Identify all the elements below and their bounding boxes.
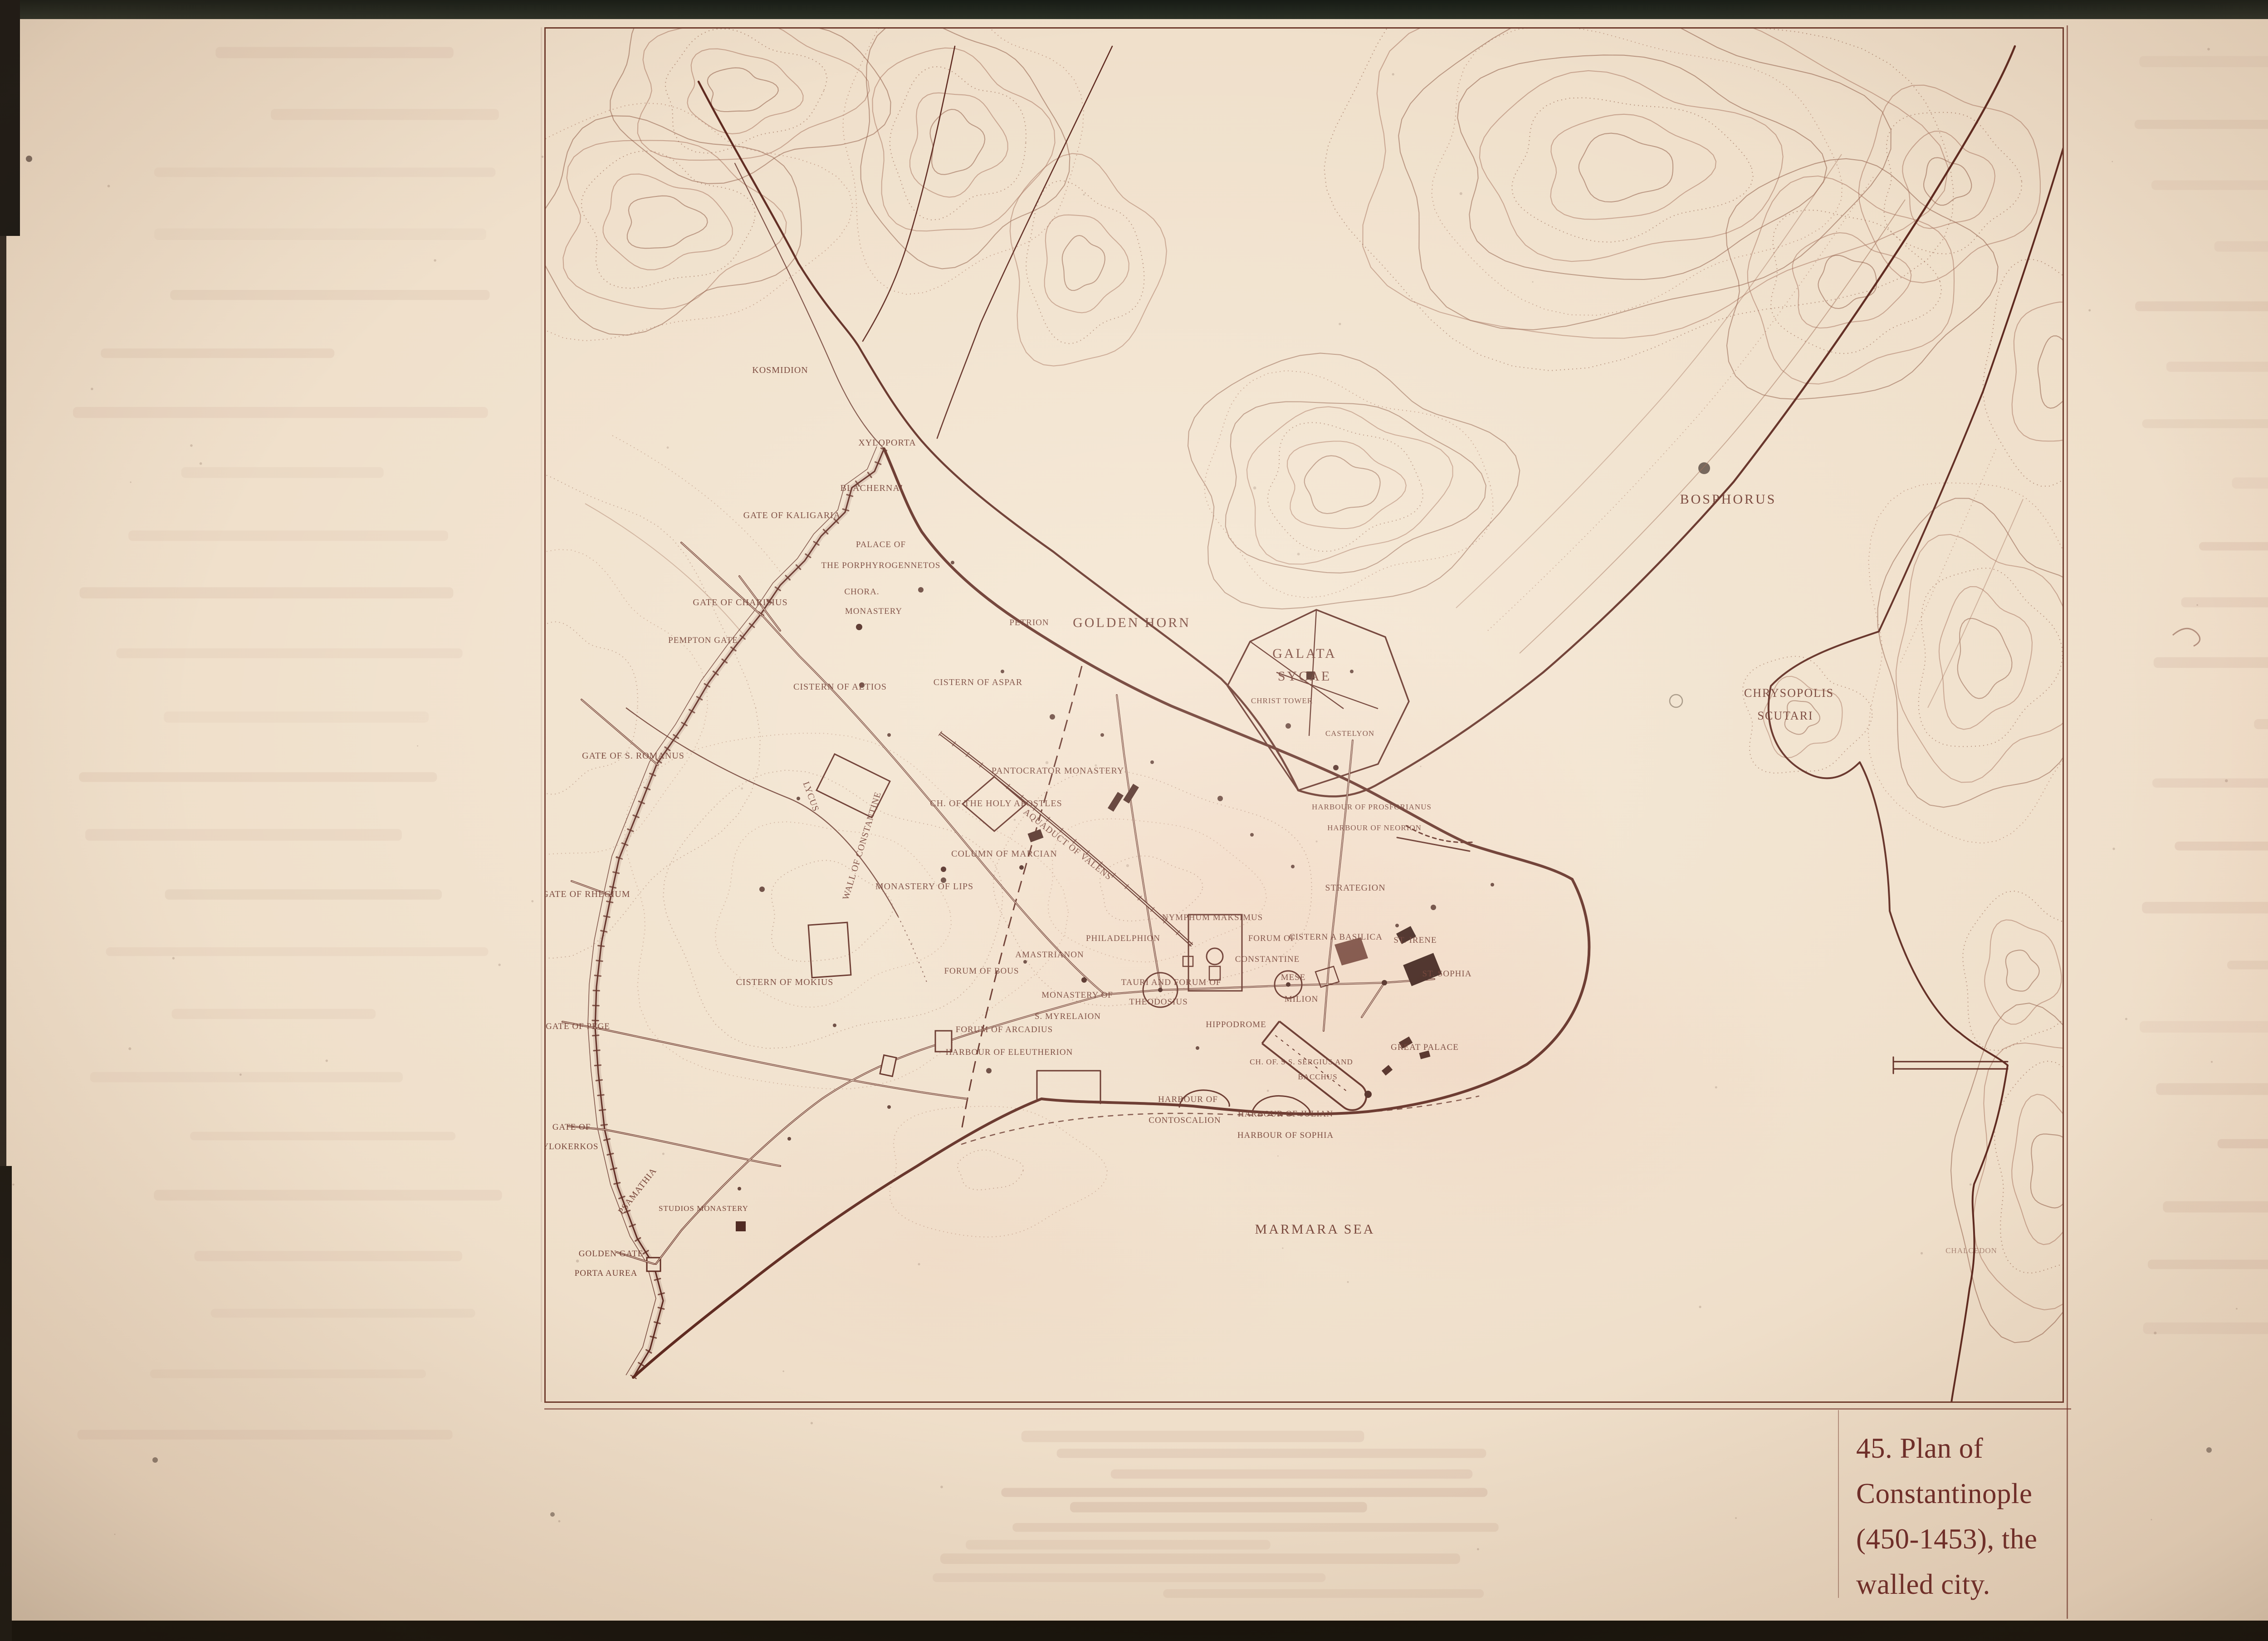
label-pantocrator-monastery: PANTOCRATOR MONASTERY xyxy=(992,766,1124,776)
label-mese: MESE xyxy=(1281,973,1306,982)
label-lycus: LYCUS xyxy=(801,780,821,813)
scan-edge-top xyxy=(0,0,2268,19)
label-scutari: SCUTARI xyxy=(1757,709,1813,722)
label-cistern-of-mokius: CISTERN OF MOKIUS xyxy=(736,977,834,987)
label-strategion: STRATEGION xyxy=(1325,883,1385,893)
monuments-and-sites xyxy=(736,624,1682,1231)
label-aquaduct-of-valens: AQUADUCT OF VALENS xyxy=(1022,807,1114,882)
figure-caption: 45. Plan of Constantinople (450-1453), t… xyxy=(1856,1425,2065,1607)
label-blachernai: BLACHERNAI xyxy=(841,483,904,493)
label-gate-of-s-romanus: GATE OF S. ROMANUS xyxy=(582,751,684,761)
label-chalcedon: CHALCEDON xyxy=(1945,1246,1997,1255)
label-hippodrome: HIPPODROME xyxy=(1206,1020,1266,1029)
label-ss-sergius-bacchus: BACCHUS xyxy=(1298,1073,1337,1081)
label-bosphorus: BOSPHORUS xyxy=(1680,492,1777,507)
label-great-palace: GREAT PALACE xyxy=(1391,1043,1459,1052)
caption-top-rule xyxy=(544,1408,2071,1410)
label-philadelphion: PHILADELPHION xyxy=(1086,934,1160,943)
label-monastery-myrelaion: MONASTERY OF xyxy=(1041,990,1113,1000)
label-tauri-forum-theodosius: THEODOSIUS xyxy=(1129,997,1188,1007)
label-chora-monastery: MONASTERY xyxy=(845,607,902,616)
label-studios-monastery: STUDIOS MONASTERY xyxy=(659,1204,748,1213)
caption-line: Constantinople xyxy=(1856,1471,2065,1516)
label-monastery-myrelaion: S. MYRELAION xyxy=(1035,1012,1101,1021)
label-forum-of-bous: FORUM OF BOUS xyxy=(944,966,1019,976)
label-psamathia: PSAMATHIA xyxy=(616,1166,659,1216)
label-gate-of-kaligaria: GATE OF KALIGARIA xyxy=(743,510,841,520)
caption-left-rule xyxy=(1838,1410,1839,1598)
label-palace-porphyrogennetos: PALACE OF xyxy=(856,540,906,549)
label-cistern-of-aetios: CISTERN OF AETIOS xyxy=(793,682,887,692)
label-palace-porphyrogennetos: THE PORPHYROGENNETOS xyxy=(821,561,941,570)
label-harbour-contoscalion: HARBOUR OF xyxy=(1158,1095,1218,1104)
label-tauri-forum-theodosius: TAURI AND FORUM OF xyxy=(1121,978,1222,987)
label-harbour-contoscalion: CONTOSCALION xyxy=(1149,1116,1221,1125)
label-amastrianon: AMASTRIANON xyxy=(1015,950,1084,960)
label-gate-of-rhegium: GATE OF RHEGIUM xyxy=(544,889,631,899)
label-harbour-prosforianus: HARBOUR OF PROSFORIANUS xyxy=(1312,803,1432,811)
label-gate-xylokerkos: XYLOKERKOS xyxy=(544,1142,598,1151)
label-harbour-julian: HARBOUR OF JULIAN xyxy=(1238,1109,1333,1119)
label-golden-gate: GOLDEN GATE xyxy=(579,1249,643,1259)
label-harbour-sophia: HARBOUR OF SOPHIA xyxy=(1237,1131,1334,1140)
scan-edge-bottom xyxy=(0,1621,2268,1641)
scan-edge-left-bottom-wedge xyxy=(0,1166,12,1641)
label-chora-monastery: CHORA. xyxy=(844,587,879,597)
label-forum-of-arcadius: FORUM OF ARCADIUS xyxy=(956,1025,1053,1034)
label-st-sophia: ST. SOPHIA xyxy=(1422,969,1472,979)
city-walls xyxy=(588,446,1409,1377)
scanned-book-page: KOSMIDION XYLOPORTA BLACHERNAI GATE OF K… xyxy=(0,0,2268,1641)
label-forum-of-constantine: CONSTANTINE xyxy=(1235,955,1300,964)
map-drawing: KOSMIDION XYLOPORTA BLACHERNAI GATE OF K… xyxy=(544,27,2064,1403)
label-cistern-of-aspar: CISTERN OF ASPAR xyxy=(934,677,1022,687)
label-gate-of-charisius: GATE OF CHARISIUS xyxy=(693,598,787,607)
map-labels: KOSMIDION XYLOPORTA BLACHERNAI GATE OF K… xyxy=(544,365,1997,1278)
label-chrysopolis: CHRYSOPOLIS xyxy=(1744,686,1834,700)
label-st-irene: ST. IRENE xyxy=(1393,936,1437,945)
label-harbour-neorion: HARBOUR OF NEORION xyxy=(1327,823,1422,832)
label-forum-of-constantine: FORUM OF xyxy=(1248,934,1296,943)
label-marmara-sea: MARMARA SEA xyxy=(1255,1222,1375,1237)
label-nymphum-maksimus: NYMPHUM MAKSIMUS xyxy=(1162,913,1263,922)
label-xyloporta: XYLOPORTA xyxy=(858,438,916,448)
label-pempton-gate: PEMPTON GATE xyxy=(668,636,738,645)
label-gate-of-pege: GATE OF PEGE xyxy=(546,1022,610,1031)
caption-line: (450-1453), the xyxy=(1856,1516,2065,1562)
contour-lines xyxy=(544,27,2064,1342)
label-sycae: SYCAE xyxy=(1278,669,1331,684)
label-gate-xylokerkos: GATE OF xyxy=(552,1122,591,1132)
label-milion: MILION xyxy=(1285,994,1319,1004)
page-crease xyxy=(541,27,542,1402)
label-column-of-marcian: COLUMN OF MARCIAN xyxy=(951,849,1057,859)
caption-line: walled city. xyxy=(1856,1562,2065,1607)
label-monastery-of-lips: MONASTERY OF LIPS xyxy=(875,882,973,892)
label-golden-gate: PORTA AUREA xyxy=(575,1269,638,1278)
label-cisterna-basilica: CISTERN A BASILICA xyxy=(1289,932,1383,942)
label-holy-apostles: CH. OF THE HOLY APOSTLES xyxy=(930,798,1062,808)
label-christ-tower: CHRIST TOWER xyxy=(1251,696,1313,705)
scan-edge-left-top-wedge xyxy=(0,0,20,236)
label-kosmidion: KOSMIDION xyxy=(752,365,808,375)
label-ss-sergius-bacchus: CH. OF. S S. SERGIUS AND xyxy=(1250,1058,1353,1066)
label-galata: GALATA xyxy=(1272,646,1337,661)
label-golden-horn: GOLDEN HORN xyxy=(1073,615,1191,630)
page-column-rule xyxy=(2067,25,2068,1619)
map-frame-border xyxy=(545,28,2063,1402)
label-harbour-eleutherion: HARBOUR OF ELEUTHERION xyxy=(946,1048,1073,1057)
coastlines xyxy=(633,46,2064,1403)
caption-line: 45. Plan of xyxy=(1856,1425,2065,1471)
label-petrion: PETRION xyxy=(1009,618,1049,627)
label-castelyon: CASTELYON xyxy=(1325,729,1374,738)
